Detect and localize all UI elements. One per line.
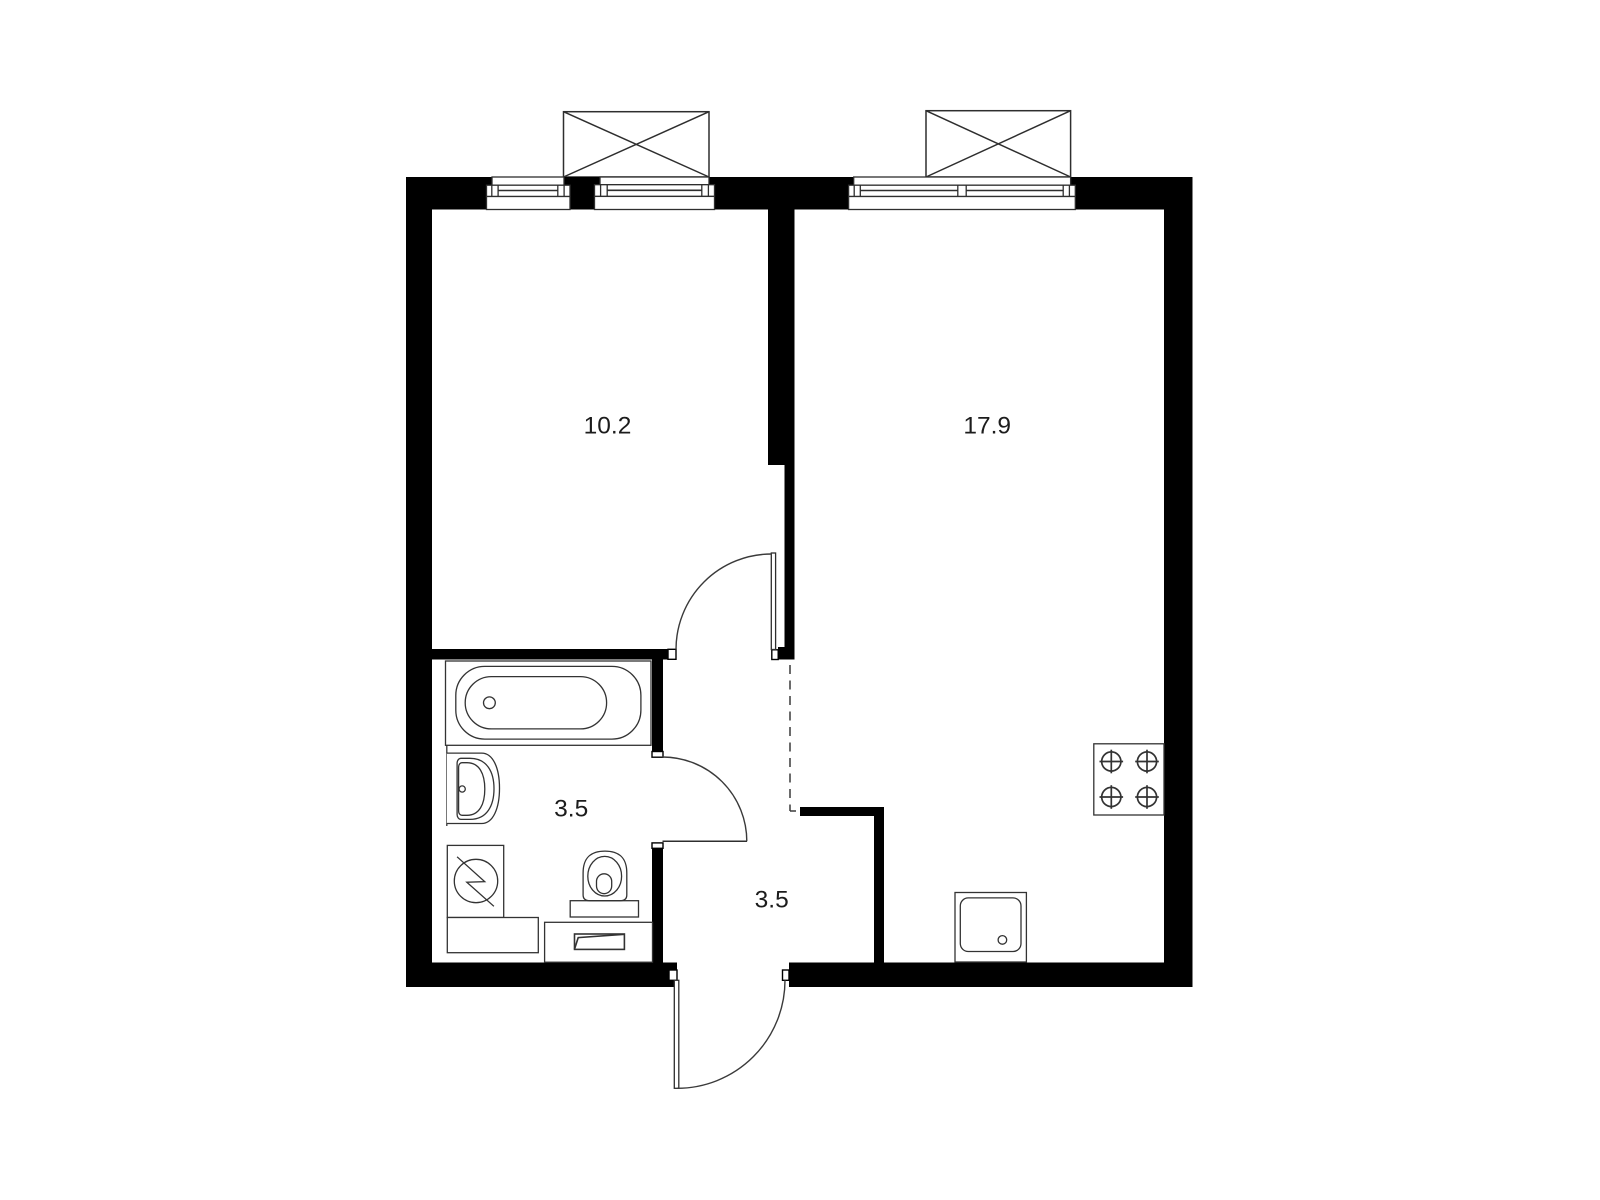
svg-text:17.9: 17.9 (963, 413, 1011, 440)
svg-text:10.2: 10.2 (584, 413, 632, 440)
svg-text:3.5: 3.5 (755, 887, 789, 914)
svg-text:3.5: 3.5 (554, 795, 588, 822)
